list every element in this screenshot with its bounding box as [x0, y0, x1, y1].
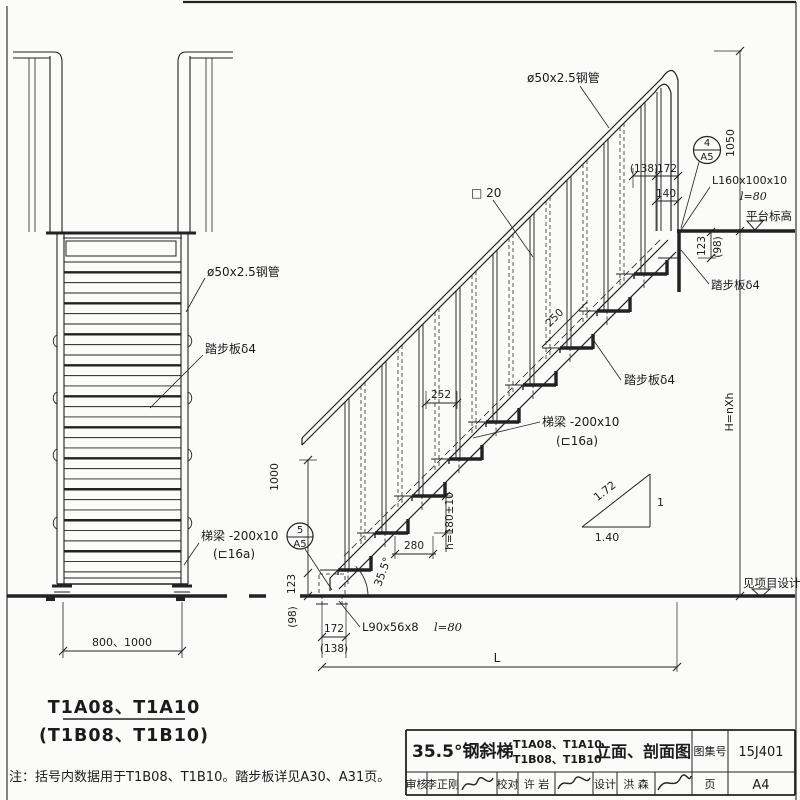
dim-riser-height: h=180±10 — [444, 492, 456, 550]
angle-cleat-bottom-label: L90x56x8 — [362, 620, 419, 634]
dim-tick — [542, 339, 550, 347]
tread-label-top: 踏步板δ4 — [711, 278, 760, 292]
left-stringers — [57, 232, 188, 584]
detail-top-sheet: A5 — [700, 152, 713, 163]
slope-rise-label: 1 — [657, 496, 664, 509]
beam-label-right: 梯梁 -200x10 — [542, 414, 619, 429]
left-top-tread — [66, 241, 176, 256]
steel-stair-drawing: ø50x2.5钢管 踏步板δ4 梯梁 -200x10 (⊏16a) 800、10… — [0, 0, 800, 800]
review-name: 李正刚 — [426, 777, 459, 791]
right-pipe-label: ø50x2.5钢管 — [527, 70, 600, 85]
proof-label: 校对 — [497, 777, 519, 791]
see-project-label: 见项目设计 — [743, 576, 800, 590]
angle-cleat-top-length: l=80 — [740, 190, 767, 203]
angle-cleat-top-label: L160x100x10 — [712, 174, 787, 187]
slope-hyp-label: 1.72 — [591, 479, 618, 504]
review-signature-scribble — [462, 778, 493, 790]
angle-cleat-bottom-length: l=80 — [434, 620, 462, 634]
review-label: 审核 — [406, 777, 428, 791]
hook-left — [53, 517, 57, 529]
hook-left — [53, 449, 57, 461]
hook-left — [53, 392, 57, 404]
left-treads — [64, 262, 181, 572]
hook-left — [53, 335, 57, 347]
left-tread-label: 踏步板δ4 — [205, 342, 256, 356]
beam-label2-right: (⊏16a) — [556, 434, 598, 448]
title-block-models-2: T1B08、T1B10 — [513, 753, 602, 766]
design-signature-scribble — [658, 775, 691, 790]
detail-bottom-number: 5 — [297, 525, 303, 536]
dim-tick — [579, 302, 587, 310]
left-view-title-1: T1A08、T1A10 — [48, 698, 201, 718]
dim-total-height: H=nXh — [723, 392, 736, 431]
left-width-dim-text: 800、1000 — [92, 636, 152, 649]
dim-1050: 1050 — [724, 129, 737, 157]
atlas-number: 15J401 — [738, 745, 783, 760]
hook-right — [188, 335, 192, 347]
page-label: 页 — [705, 778, 716, 791]
dim-1000: 1000 — [268, 463, 281, 491]
dim-123-top: 123 — [696, 236, 708, 256]
dim-138-bottom: (138) — [320, 643, 348, 655]
dim-140: 140 — [656, 188, 676, 200]
dim-138-top: (138) — [630, 163, 658, 175]
dim-98-top: (98) — [712, 236, 724, 258]
dimension-lines — [299, 51, 742, 672]
tread-label-right: 踏步板δ4 — [624, 373, 675, 387]
dim-280: 280 — [404, 540, 424, 552]
dim-172-top: 172 — [657, 163, 677, 175]
atlas-label: 图集号 — [694, 744, 727, 758]
left-beam-label2: (⊏16a) — [213, 547, 255, 561]
left-width-dimension — [63, 602, 182, 658]
dim-total-length: L — [494, 651, 501, 665]
dim-172-bottom: 172 — [324, 623, 344, 635]
slope-triangle — [582, 474, 650, 527]
proof-name: 许 岩 — [524, 777, 550, 791]
hook-right — [188, 517, 192, 529]
detail-top-number: 4 — [704, 138, 710, 149]
baluster-label: □ 20 — [471, 186, 501, 200]
left-railing — [13, 52, 233, 232]
page-number: A4 — [752, 778, 769, 793]
handrail — [302, 70, 678, 445]
slope-angle-label: 35.5° — [371, 555, 393, 588]
left-base-plates — [46, 586, 192, 601]
design-label: 设计 — [594, 778, 616, 791]
proof-signature-scribble — [558, 777, 590, 789]
title-block-drawing-type: 立面、剖面图 — [595, 742, 691, 761]
slope-run-label: 1.40 — [595, 531, 620, 544]
left-leaders — [150, 278, 205, 565]
hook-right — [188, 449, 192, 461]
dim-123-bottom: 123 — [286, 574, 298, 594]
left-beam-label: 梯梁 -200x10 — [201, 528, 278, 543]
platform-level-label: 平台标高 — [746, 209, 792, 223]
note-text: 注：括号内数据用于T1B08、T1B10。踏步板详见A30、A31页。 — [9, 769, 390, 785]
left-pipe-label: ø50x2.5钢管 — [207, 264, 280, 279]
design-name: 洪 森 — [623, 777, 649, 791]
title-block-models-1: T1A08、T1A10 — [513, 738, 602, 751]
left-view-title-2: (T1B08、T1B10) — [39, 726, 209, 746]
dim-98-bottom: (98) — [287, 606, 299, 628]
drawing-sheet: ø50x2.5钢管 踏步板δ4 梯梁 -200x10 (⊏16a) 800、10… — [0, 0, 800, 800]
hook-right — [188, 392, 192, 404]
title-block-main-title: 35.5°钢斜梯 — [412, 741, 513, 762]
detail-bottom-sheet: A5 — [293, 539, 306, 550]
dim-252: 252 — [431, 389, 451, 401]
